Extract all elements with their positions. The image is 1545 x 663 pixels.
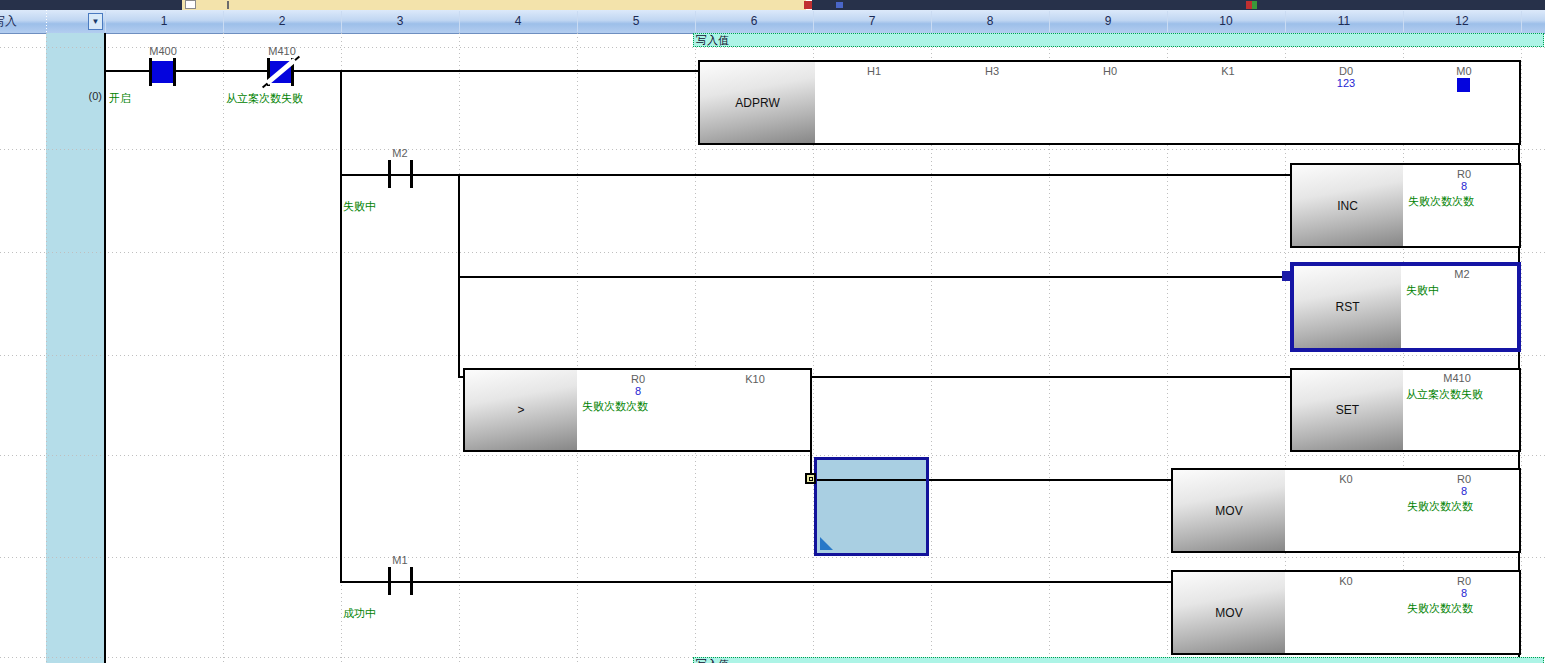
mov-fail-opcode-box: MOV (1173, 470, 1285, 551)
mov-success-monitor-value: 8 (1424, 587, 1504, 599)
mov-fail-source: K0 (1306, 473, 1386, 485)
write-value-banner-top-label: 写入值 (696, 34, 729, 46)
header-sep (577, 11, 578, 32)
row-boundary (0, 149, 1545, 150)
mov-fail-monitor-value: 8 (1424, 485, 1504, 497)
grid-line (695, 33, 696, 663)
adprw-param-5: D0 (1306, 65, 1386, 77)
set-opcode-box: SET (1292, 370, 1403, 450)
contact-label-m1: M1 (360, 554, 440, 566)
contact-label-m410: M410 (242, 45, 322, 57)
header-sep (1167, 11, 1168, 32)
mov-fail-dest-comment: 失败次数次数 (1407, 499, 1473, 514)
step-number: (0) (58, 90, 102, 102)
grid-line (46, 33, 47, 663)
adprw-mnemonic: ADPRW (735, 96, 779, 110)
rung-wire-4 (927, 479, 1171, 481)
row-boundary (0, 557, 1545, 558)
mov-success-opcode-box: MOV (1173, 572, 1285, 653)
header-sep (341, 11, 342, 32)
write-value-banner-bottom: 写入值 (693, 657, 1544, 663)
toolbar-separator (227, 1, 229, 9)
header-sep (223, 11, 224, 32)
contact-comment-m410: 从立案次数失败 (226, 91, 303, 106)
contact-m400-on-state (152, 61, 173, 83)
document-icon (185, 0, 196, 9)
adprw-param-6: M0 (1424, 65, 1504, 77)
grid-line (1521, 33, 1522, 663)
contact-label-m2: M2 (360, 147, 440, 159)
contact-comment-m1: 成功中 (343, 606, 376, 621)
connection-point-icon[interactable] (805, 473, 816, 484)
header-sep (695, 11, 696, 32)
col-header-9[interactable]: 9 (1049, 10, 1167, 33)
compare-operand-2: K10 (715, 373, 795, 385)
cell-cursor[interactable] (814, 457, 929, 556)
adprw-param-1: H1 (834, 65, 914, 77)
contact-m2[interactable] (388, 160, 391, 188)
mov-success-mnemonic: MOV (1215, 606, 1242, 620)
col-header-3[interactable]: 3 (341, 10, 459, 33)
adprw-param-4: K1 (1188, 65, 1268, 77)
col-header-12[interactable]: 12 (1403, 10, 1521, 33)
left-power-rail (104, 33, 106, 663)
header-sep (1049, 11, 1050, 32)
compare-mnemonic: > (517, 403, 524, 417)
grid-line (223, 33, 224, 663)
rst-operand-comment: 失败中 (1406, 283, 1439, 298)
col-header-7[interactable]: 7 (813, 10, 931, 33)
rung-wire-2 (459, 276, 1290, 278)
toolbar-glyph-icon (836, 2, 843, 8)
instruction-block-rst[interactable]: RST M2 失败中 (1290, 262, 1521, 352)
header-sep (813, 11, 814, 32)
branch-wire-col3 (340, 70, 342, 583)
mov-fail-dest: R0 (1424, 473, 1504, 485)
inc-monitor-value: 8 (1424, 180, 1504, 192)
toolbar-multicolor-icon2 (1252, 1, 1257, 9)
set-mnemonic: SET (1336, 403, 1359, 417)
adprw-param-3: H0 (1070, 65, 1150, 77)
inc-operand-comment: 失败次数次数 (1408, 194, 1474, 209)
contact-m2-bar (410, 160, 413, 188)
contact-m400-bar (173, 58, 176, 86)
row-boundary (0, 252, 1545, 253)
contact-comment-m400: 开启 (109, 91, 131, 106)
titlebar-fragment (0, 0, 182, 10)
rst-mnemonic: RST (1336, 300, 1360, 314)
adprw-m0-on-indicator (1457, 78, 1470, 92)
rung-wire-0 (106, 70, 698, 72)
inc-operand: R0 (1424, 168, 1504, 180)
toolbar-fragment (182, 0, 806, 10)
compare-operand-1: R0 (598, 373, 678, 385)
header-divider (46, 10, 47, 33)
rst-opcode-box: RST (1294, 266, 1401, 348)
header-sep (459, 11, 460, 32)
col-header-2[interactable]: 2 (223, 10, 341, 33)
adprw-param-2: H3 (952, 65, 1032, 77)
rung-wire-3b (810, 376, 1290, 378)
row-boundary (0, 355, 1545, 356)
header-sep (105, 11, 106, 32)
cell-cursor-wire (817, 479, 926, 481)
toolbar-color-icon (804, 1, 812, 9)
branch-wire-col4 (458, 174, 460, 378)
titlebar-fragment-right (812, 0, 1545, 10)
instruction-block-mov-success[interactable]: MOV K0 R0 8 失败次数次数 (1171, 570, 1521, 655)
set-operand: M410 (1417, 372, 1497, 384)
compare-opcode-box: > (465, 370, 577, 450)
adprw-d0-monitor-value: 123 (1306, 77, 1386, 89)
dropdown-arrow-icon[interactable]: ▼ (88, 13, 103, 30)
write-value-banner-bottom-label: 写入值 (696, 658, 729, 663)
header-sep (1521, 11, 1522, 32)
rung-wire-1 (341, 174, 1290, 176)
instruction-block-inc[interactable]: INC R0 8 失败次数次数 (1290, 163, 1521, 248)
col-header-6[interactable]: 6 (695, 10, 813, 33)
compare-monitor-value: 8 (598, 385, 678, 397)
set-operand-comment: 从立案次数失败 (1406, 387, 1483, 402)
instruction-block-adprw[interactable]: ADPRW H1 H3 H0 K1 D0 123 M0 (698, 60, 1521, 145)
mov-success-dest: R0 (1424, 575, 1504, 587)
contact-comment-m2: 失败中 (343, 199, 376, 214)
mov-success-dest-comment: 失败次数次数 (1407, 601, 1473, 616)
instruction-block-mov-fail[interactable]: MOV K0 R0 8 失败次数次数 (1171, 468, 1521, 553)
ladder-editor-window: 写入 ▼ 1 2 3 4 5 6 7 8 9 10 11 12 (0, 0, 1545, 663)
col-header-11[interactable]: 11 (1285, 10, 1403, 33)
col-header-5[interactable]: 5 (577, 10, 695, 33)
header-sep (931, 11, 932, 32)
inc-opcode-box: INC (1292, 165, 1403, 246)
cell-cursor-corner-icon (820, 537, 833, 550)
rst-operand: M2 (1422, 268, 1502, 280)
mov-fail-mnemonic: MOV (1215, 504, 1242, 518)
col-header-8[interactable]: 8 (931, 10, 1049, 33)
header-sep (1285, 11, 1286, 32)
compare-operand-comment: 失败次数次数 (582, 399, 648, 414)
right-power-rail (1518, 60, 1520, 657)
row-boundary (0, 455, 1545, 456)
inc-mnemonic: INC (1337, 199, 1358, 213)
grid-line (577, 33, 578, 663)
write-value-banner-top: 写入值 (693, 33, 1544, 47)
contact-m1[interactable] (388, 567, 391, 595)
rung-wire-5 (341, 581, 1171, 583)
header-sep (1403, 11, 1404, 32)
col-header-1[interactable]: 1 (105, 10, 223, 33)
step-number-column (46, 33, 104, 663)
adprw-opcode-box: ADPRW (700, 62, 815, 143)
row-boundary (0, 47, 1545, 48)
col-header-10[interactable]: 10 (1167, 10, 1285, 33)
mov-success-source: K0 (1306, 575, 1386, 587)
instruction-block-set[interactable]: SET M410 从立案次数失败 (1290, 368, 1521, 452)
contact-m1-bar (410, 567, 413, 595)
col-header-4[interactable]: 4 (459, 10, 577, 33)
contact-label-m400: M400 (123, 45, 203, 57)
instruction-block-compare[interactable]: > R0 8 失败次数次数 K10 (463, 368, 812, 452)
